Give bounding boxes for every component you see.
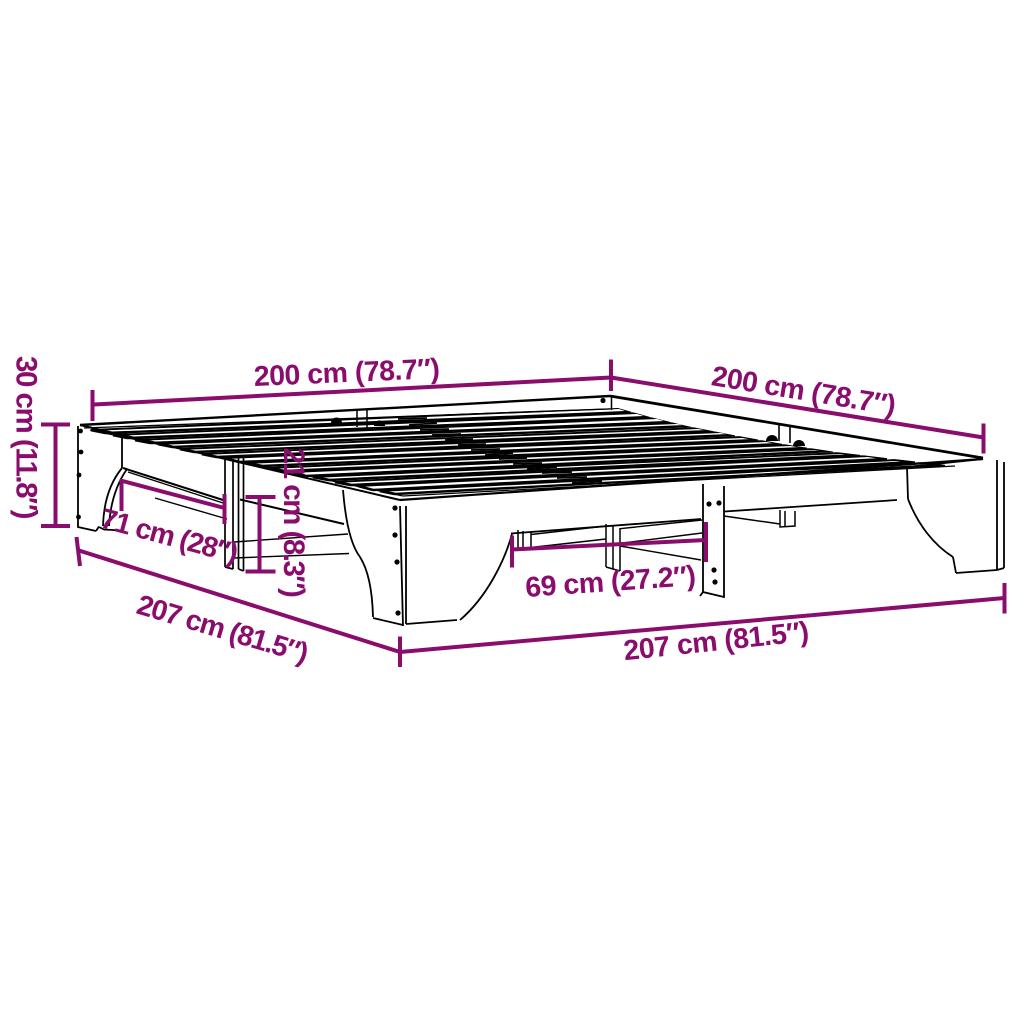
svg-text:30 cm (11.8″): 30 cm (11.8″) [10, 356, 43, 519]
svg-text:21 cm (8.3″): 21 cm (8.3″) [277, 448, 310, 597]
